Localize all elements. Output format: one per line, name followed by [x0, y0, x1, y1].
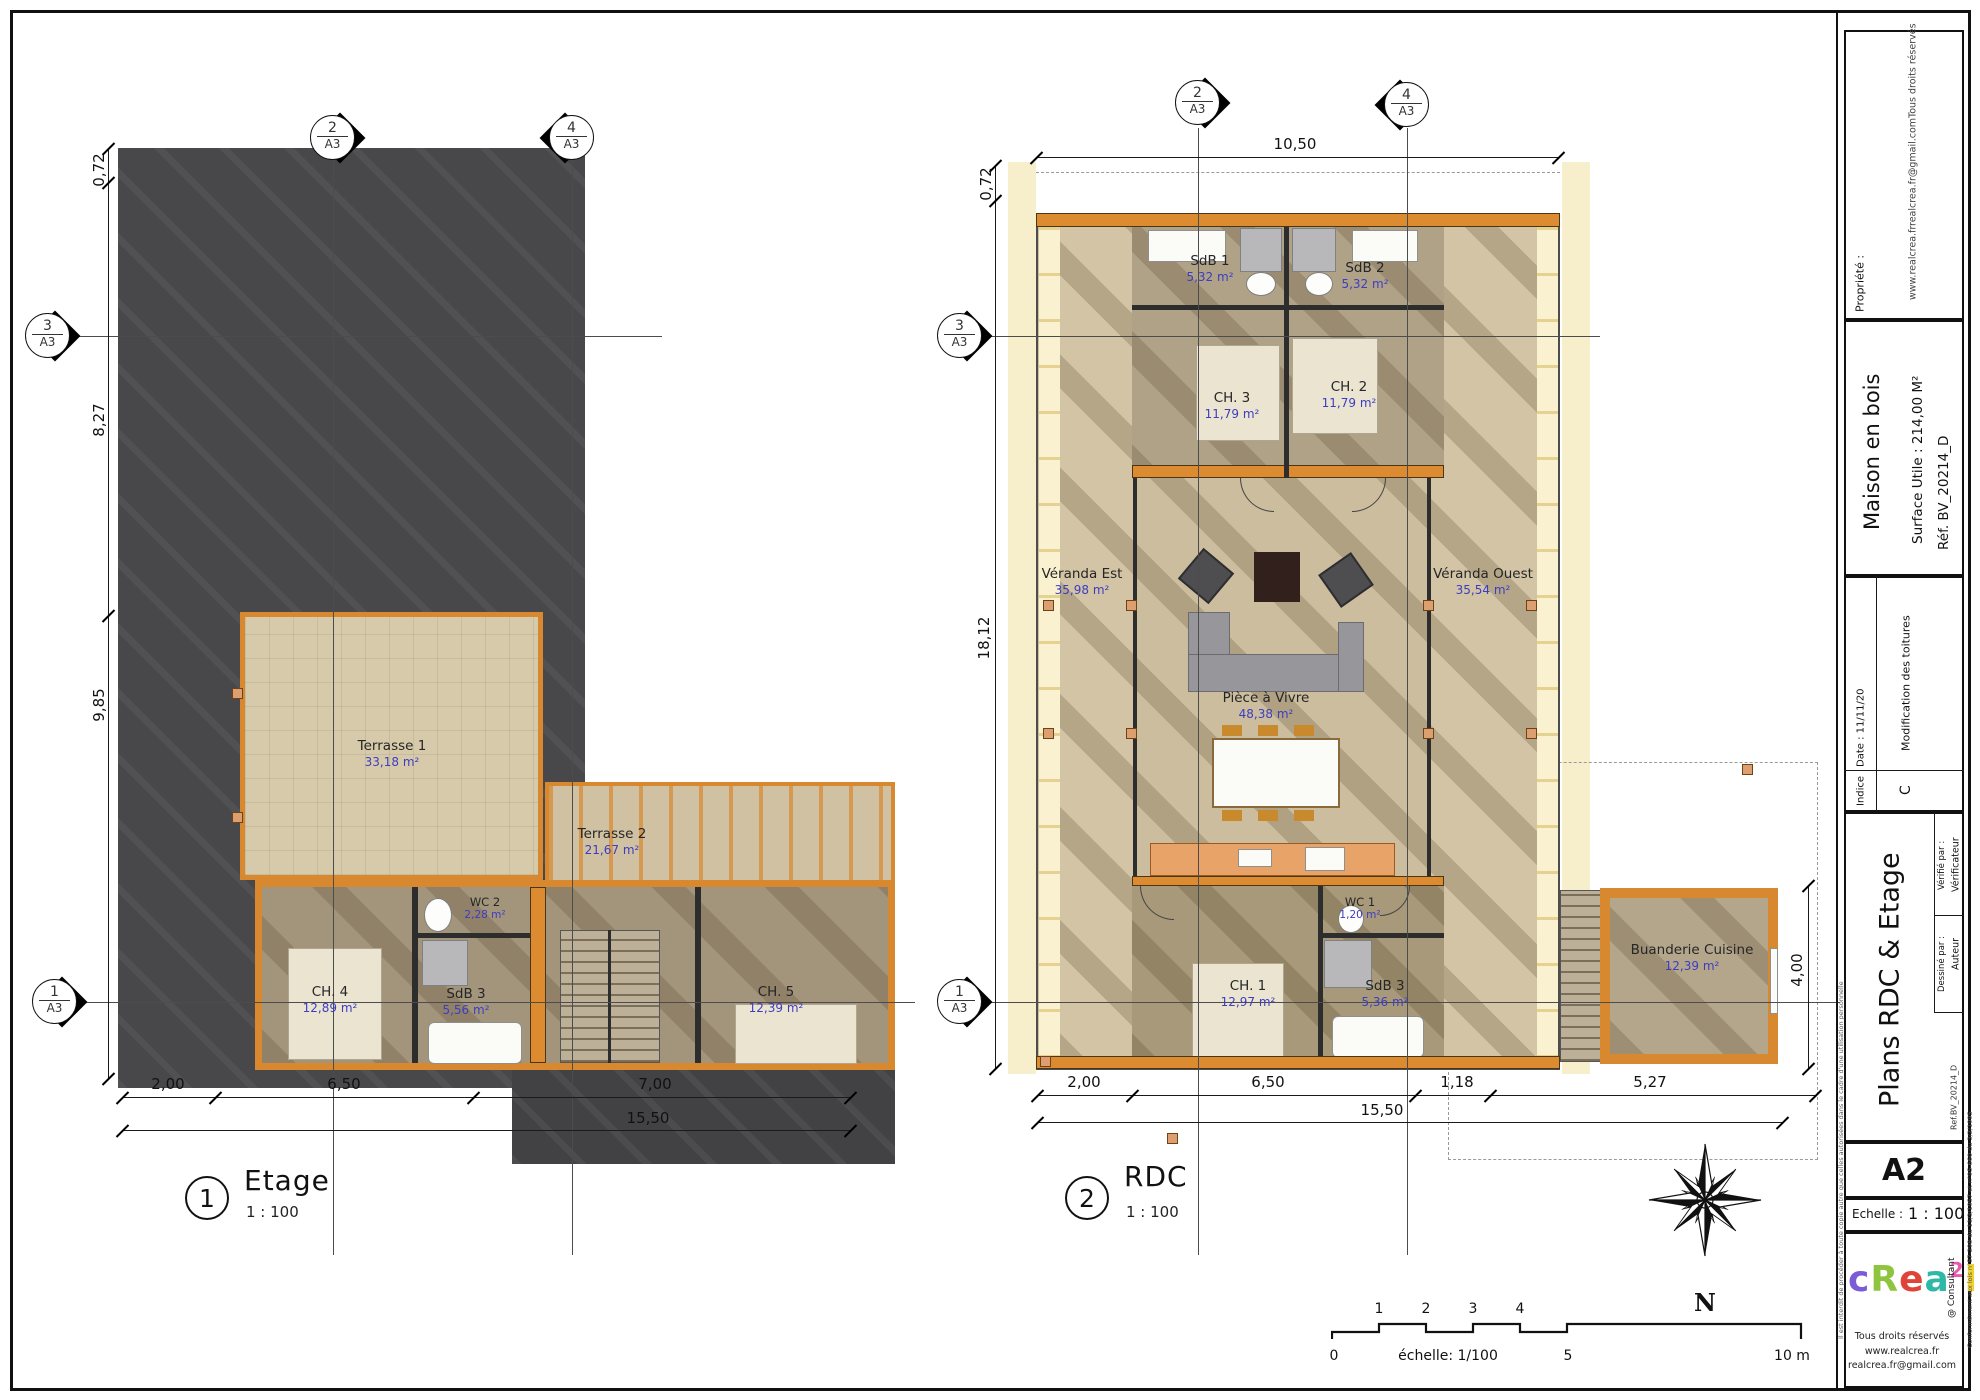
toilet [1305, 272, 1333, 296]
post [232, 812, 243, 823]
section-marker-4: 4 A3 [1384, 82, 1430, 128]
section-ref: A3 [556, 136, 587, 151]
date-label: Date : 11/11/20 [1848, 688, 1874, 768]
post [1126, 600, 1137, 611]
footer-line: realcrea.fr@gmail.com [1848, 1359, 1956, 1374]
toilet [1246, 272, 1276, 296]
dim-label: 0,72 [977, 167, 995, 200]
dim-label: 6,50 [1251, 1073, 1284, 1091]
drawn-by-value: Auteur [1949, 922, 1963, 986]
post [1423, 728, 1434, 739]
toilet [424, 898, 452, 932]
section-marker-3: 3 A3 [937, 313, 983, 359]
chair [1294, 725, 1314, 736]
axis-line [985, 1002, 1840, 1003]
exterior-staircase [1560, 890, 1602, 1062]
dim-line [1036, 157, 1558, 158]
room-label-terrasse-1: Terrasse 1 33,18 m² [358, 738, 427, 770]
sofa [1338, 622, 1364, 692]
dim-label: 18,12 [975, 617, 993, 660]
author-divider [1934, 915, 1964, 916]
section-ref: A3 [1391, 103, 1422, 118]
wall [418, 933, 532, 938]
sheet-format: A2 [1844, 1142, 1964, 1198]
room-area: 1,20 m² [1339, 909, 1380, 922]
checked-by-value: Vérificateur [1949, 818, 1963, 912]
chair [1258, 810, 1278, 821]
room-label-sdb2: SdB 2 5,32 m² [1341, 260, 1388, 292]
room-label-wc2: WC 2 2,28 m² [464, 895, 505, 923]
dim-label: 5,27 [1633, 1073, 1666, 1091]
credits-text: www.realcrea.fr realcrea.fr@gmail.com To… [1892, 92, 1934, 232]
room-area: 5,32 m² [1186, 270, 1233, 285]
section-circle: 3 A3 [937, 313, 982, 358]
room-name: WC 1 [1339, 895, 1380, 909]
legal-disclaimer: Conformément aux lois n°57-298 du 11/3/1… [1966, 1080, 1974, 1380]
section-circle: 4 A3 [549, 115, 594, 160]
room-name: Buanderie Cuisine [1631, 942, 1754, 959]
dim-label: 7,00 [638, 1075, 671, 1093]
plan-title: Etage [244, 1164, 330, 1197]
room-label-sdb1: SdB 1 5,32 m² [1186, 253, 1233, 285]
dim-label: 1,18 [1440, 1073, 1473, 1091]
room-area: 12,89 m² [303, 1001, 358, 1016]
post [1742, 764, 1753, 775]
revision-note: Modification des toitures [1880, 598, 1932, 768]
dim-label: 15,50 [627, 1109, 670, 1127]
sofa [1188, 654, 1358, 692]
crea-logo: cRea2l [1848, 1258, 1952, 1300]
surface-label: Surface Utile : 214,00 M² [1906, 352, 1930, 568]
section-marker-4: 4 A3 [549, 115, 595, 161]
bathroom-sink [1352, 230, 1418, 262]
scale-value: 1 : 100 [1908, 1204, 1964, 1223]
buanderie-room [1600, 888, 1778, 1064]
kitchen-counter [1150, 843, 1395, 876]
room-name: CH. 5 [749, 984, 804, 1001]
section-ref: A3 [944, 1000, 975, 1015]
shower [1292, 228, 1336, 272]
room-area: 12,39 m² [749, 1001, 804, 1016]
dim-line [1808, 885, 1809, 1068]
section-circle: 1 A3 [937, 979, 982, 1024]
compass-rose-icon [1645, 1140, 1765, 1286]
consultant-label: @ Consultant [1944, 1240, 1960, 1336]
room-name: CH. 3 [1205, 390, 1260, 407]
section-marker-3: 3 A3 [25, 313, 71, 359]
dim-label: 2,00 [151, 1075, 184, 1093]
shower [422, 940, 468, 986]
logo-footer: Tous droits réservés www.realcrea.fr rea… [1848, 1330, 1956, 1374]
revision-divider [1876, 576, 1877, 812]
section-circle: 2 A3 [1175, 80, 1220, 125]
section-marker-1: 1 A3 [32, 979, 78, 1025]
post [1040, 1056, 1051, 1067]
checked-by-label: Vérifié par : [1935, 818, 1949, 912]
plan-scale: 1 : 100 [246, 1203, 299, 1221]
wall [1318, 933, 1444, 938]
room-area: 35,54 m² [1433, 583, 1533, 598]
scale-tick-label: 0 [1330, 1348, 1339, 1364]
scale-tick-label: 1 [1375, 1301, 1384, 1317]
room-label-terrasse-2: Terrasse 2 21,67 m² [578, 826, 647, 858]
dim-label: 8,27 [90, 403, 108, 436]
wall [412, 887, 418, 1063]
post [1167, 1133, 1178, 1144]
dim-line [122, 1097, 850, 1098]
room-name: CH. 2 [1322, 379, 1377, 396]
north-label: N [1694, 1288, 1716, 1317]
room-name: Terrasse 1 [358, 738, 427, 755]
dim-label: 9,85 [90, 688, 108, 721]
owner-label: Propriété : [1850, 250, 1870, 316]
wall [1036, 1056, 1560, 1069]
credit-line: realcrea.fr@gmail.com [1908, 118, 1919, 226]
room-area: 33,18 m² [358, 755, 427, 770]
section-circle: 4 A3 [1384, 82, 1429, 127]
section-ref: A3 [32, 334, 63, 349]
section-number: 2 [328, 116, 337, 136]
dim-label: 2,00 [1067, 1073, 1100, 1091]
post [1126, 728, 1137, 739]
indice-value: C [1880, 772, 1932, 808]
section-ref: A3 [39, 1000, 70, 1015]
room-area: 12,97 m² [1221, 995, 1276, 1010]
post [1423, 600, 1434, 611]
axis-line [572, 160, 573, 1255]
room-label-veranda-ouest: Véranda Ouest 35,54 m² [1433, 566, 1533, 598]
room-name: Véranda Ouest [1433, 566, 1533, 583]
section-number: 2 [1193, 81, 1202, 101]
room-name: SdB 3 [1361, 978, 1408, 995]
section-number: 3 [955, 314, 964, 334]
project-title: Maison en bois [1854, 338, 1890, 566]
plan-scale: 1 : 100 [1126, 1203, 1179, 1221]
room-name: Terrasse 2 [578, 826, 647, 843]
veranda-west-floor [1430, 227, 1537, 1067]
scale-tick-label: 10 m [1774, 1348, 1810, 1364]
dim-line [1037, 1122, 1782, 1123]
post [1526, 600, 1537, 611]
dim-line [995, 165, 996, 1068]
room-area: 12,39 m² [1631, 959, 1754, 974]
footer-line: Tous droits réservés [1848, 1330, 1956, 1345]
section-marker-2: 2 A3 [1175, 80, 1221, 126]
section-number: 1 [955, 980, 964, 1000]
scale-label: Echelle : [1852, 1207, 1903, 1221]
wall [530, 887, 546, 1063]
post [1526, 728, 1537, 739]
footer-line: www.realcrea.fr [1848, 1345, 1956, 1360]
room-name: SdB 2 [1341, 260, 1388, 277]
section-marker-2: 2 A3 [310, 115, 356, 161]
stair-stringer [608, 930, 611, 1063]
section-marker-1: 1 A3 [937, 979, 983, 1025]
veranda-glazing-west [1537, 227, 1558, 1067]
dim-label: 6,50 [327, 1075, 360, 1093]
axis-line [72, 336, 662, 337]
indice-label: Indice [1848, 772, 1874, 810]
dim-line [1037, 1095, 1815, 1096]
author-divider [1934, 1012, 1964, 1013]
cooktop [1305, 847, 1345, 871]
dim-label: 10,50 [1274, 135, 1317, 153]
room-name: CH. 1 [1221, 978, 1276, 995]
dim-label: 0,72 [90, 153, 108, 186]
room-name: Véranda Est [1042, 566, 1123, 583]
room-name: SdB 3 [442, 986, 489, 1003]
shower [1240, 228, 1282, 272]
chair [1222, 725, 1242, 736]
chair [1294, 810, 1314, 821]
section-ref: A3 [1182, 101, 1213, 116]
section-number: 4 [567, 116, 576, 136]
roof-overhang-east [1008, 162, 1036, 1074]
section-number: 1 [50, 980, 59, 1000]
veranda-glazing-east [1039, 227, 1060, 1067]
room-area: 11,79 m² [1205, 407, 1260, 422]
room-label-ch5: CH. 5 12,39 m² [749, 984, 804, 1016]
room-label-ch3: CH. 3 11,79 m² [1205, 390, 1260, 422]
room-area: 35,98 m² [1042, 583, 1123, 598]
section-ref: A3 [944, 334, 975, 349]
legal-disclaimer: Il est interdit de procéder à toute copi… [1837, 940, 1845, 1380]
axis-line [985, 336, 1600, 337]
room-area: 11,79 m² [1322, 396, 1377, 411]
wall [1132, 305, 1444, 310]
room-label-sdb3-rdc: SdB 3 5,36 m² [1361, 978, 1408, 1010]
room-name: CH. 4 [303, 984, 358, 1001]
room-area: 5,56 m² [442, 1003, 489, 1018]
wall [695, 887, 701, 1063]
reference-label: Réf. BV_20214_D [1932, 418, 1956, 568]
room-label-piece-a-vivre: Pièce à Vivre 48,38 m² [1223, 690, 1310, 722]
section-circle: 2 A3 [310, 115, 355, 160]
scale-tick-label: 2 [1422, 1301, 1431, 1317]
drawing-sheet: Terrasse 1 33,18 m² Terrasse 2 21,67 m² … [0, 0, 1980, 1400]
post [1043, 600, 1054, 611]
room-name: WC 2 [464, 895, 505, 909]
scale-tick-label: 4 [1516, 1301, 1525, 1317]
dim-label: 15,50 [1361, 1101, 1404, 1119]
wall [1132, 876, 1444, 886]
chair [1258, 725, 1278, 736]
dim-label: 4,00 [1788, 953, 1806, 986]
wall [1284, 227, 1289, 478]
section-circle: 3 A3 [25, 313, 70, 358]
axis-line [1407, 128, 1408, 1255]
room-label-buanderie: Buanderie Cuisine 12,39 m² [1631, 942, 1754, 974]
room-label-ch4: CH. 4 12,89 m² [303, 984, 358, 1016]
room-area: 5,36 m² [1361, 995, 1408, 1010]
credit-line: www.realcrea.fr [1908, 226, 1919, 300]
chair [1222, 810, 1242, 821]
wall [1036, 213, 1560, 227]
drawn-by-label: Dessiné par : [1935, 918, 1949, 1010]
scale-caption: échelle: 1/100 [1398, 1348, 1498, 1364]
ref-small: Ref.BV_20214_D [1946, 1055, 1962, 1139]
plan-number-badge: 1 [185, 1176, 229, 1220]
room-label-sdb3: SdB 3 5,56 m² [442, 986, 489, 1018]
room-label-ch1: CH. 1 12,97 m² [1221, 978, 1276, 1010]
graphic-scale-bar [1331, 1320, 1803, 1342]
section-ref: A3 [317, 136, 348, 151]
section-circle: 1 A3 [32, 979, 77, 1024]
post [232, 688, 243, 699]
axis-line [1198, 128, 1199, 1255]
room-name: SdB 1 [1186, 253, 1233, 270]
room-label-veranda-est: Véranda Est 35,98 m² [1042, 566, 1123, 598]
veranda-east-floor [1060, 227, 1135, 1067]
room-name: Pièce à Vivre [1223, 690, 1310, 707]
credit-line: Tous droits réservés [1908, 24, 1919, 119]
wall [1318, 886, 1323, 1067]
scale-tick-label: 5 [1564, 1348, 1573, 1364]
room-area: 21,67 m² [578, 843, 647, 858]
room-area: 2,28 m² [464, 909, 505, 922]
bathtub [428, 1022, 522, 1064]
room-area: 48,38 m² [1223, 707, 1310, 722]
rug [1254, 552, 1300, 602]
scale-tick-label: 3 [1469, 1301, 1478, 1317]
post [1043, 728, 1054, 739]
plan-title: RDC [1124, 1160, 1188, 1193]
sheet-title: Plans RDC & Etage [1848, 822, 1932, 1137]
section-number: 3 [43, 314, 52, 334]
window [1770, 948, 1778, 1014]
plan-number-badge: 2 [1065, 1176, 1109, 1220]
bathtub [1332, 1016, 1424, 1058]
dim-line [122, 1130, 850, 1131]
section-number: 4 [1402, 83, 1411, 103]
roof-edge-dashed [1036, 172, 1560, 173]
room-label-ch2: CH. 2 11,79 m² [1322, 379, 1377, 411]
room-area: 5,32 m² [1341, 277, 1388, 292]
kitchen-sink [1238, 849, 1272, 867]
room-label-wc1: WC 1 1,20 m² [1339, 895, 1380, 923]
dining-table [1212, 738, 1340, 808]
revision-divider [1844, 770, 1964, 771]
